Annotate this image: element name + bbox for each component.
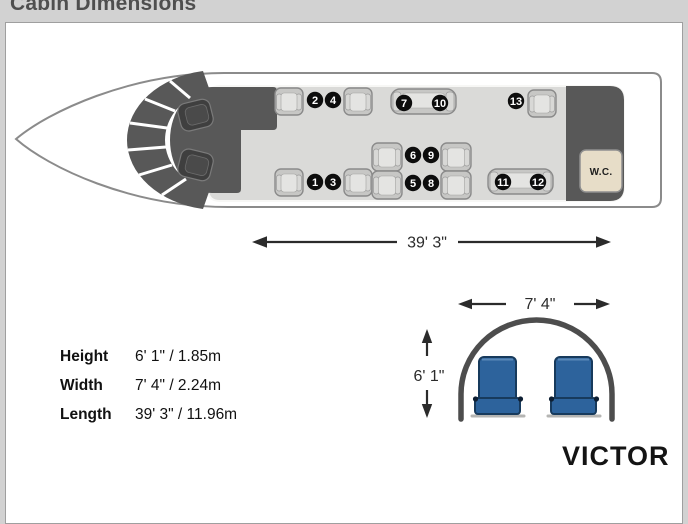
arrow-up-icon xyxy=(422,329,432,343)
dimension-value: 7' 4" / 2.24m xyxy=(135,371,221,400)
svg-text:8: 8 xyxy=(428,178,434,190)
seat-number-badge: 2 xyxy=(307,92,323,108)
dimension-label: Height xyxy=(60,342,135,371)
seat-icon xyxy=(372,143,402,171)
svg-text:9: 9 xyxy=(428,150,434,162)
seat-icon xyxy=(528,90,556,117)
length-dimension-arrow: 39' 3" xyxy=(252,235,611,252)
svg-text:10: 10 xyxy=(434,98,446,110)
height-dimension-arrow: 6' 1" xyxy=(414,329,445,418)
svg-text:2: 2 xyxy=(312,95,318,107)
length-dimension-label: 39' 3" xyxy=(407,235,447,252)
seat-number-badge: 4 xyxy=(325,92,341,108)
seat-number-badge: 6 xyxy=(405,147,421,163)
svg-text:4: 4 xyxy=(330,95,337,107)
seat-number-badge: 10 xyxy=(432,95,448,111)
svg-text:1: 1 xyxy=(312,177,318,189)
cabin-seat-icon xyxy=(549,357,599,414)
seat-icon xyxy=(441,171,471,199)
svg-text:12: 12 xyxy=(532,177,544,189)
dimensions-table: Height6' 1" / 1.85m Width7' 4" / 2.24m L… xyxy=(60,342,237,429)
seat-icon xyxy=(275,88,303,115)
seat-number-badge: 13 xyxy=(508,93,524,109)
arrow-right-icon xyxy=(596,236,611,248)
width-dimension-label: 7' 4" xyxy=(525,296,556,313)
aircraft-top-view: W.C. xyxy=(16,71,661,209)
dimension-label: Width xyxy=(60,371,135,400)
table-row: Height6' 1" / 1.85m xyxy=(60,342,237,371)
seat-number-badge: 5 xyxy=(405,175,421,191)
cabin-cross-section: 7' 4" 6' 1" xyxy=(414,296,612,419)
dimension-value: 6' 1" / 1.85m xyxy=(135,342,221,371)
seat-icon xyxy=(372,171,402,199)
seat-number-badge: 11 xyxy=(495,174,511,190)
seat-icon xyxy=(344,88,372,115)
seat-number-badge: 8 xyxy=(423,175,439,191)
table-row: Length39' 3" / 11.96m xyxy=(60,400,237,429)
seat-number-badge: 1 xyxy=(307,174,323,190)
svg-text:7: 7 xyxy=(401,98,407,110)
dimension-label: Length xyxy=(60,400,135,429)
cabin-dimensions-page: { "header": { "title": "Cabin Dimensions… xyxy=(0,0,688,458)
dimension-value: 39' 3" / 11.96m xyxy=(135,400,237,429)
svg-text:3: 3 xyxy=(330,177,336,189)
cabin-seat-icon xyxy=(473,357,523,414)
height-dimension-label: 6' 1" xyxy=(414,368,445,385)
table-row: Width7' 4" / 2.24m xyxy=(60,371,237,400)
seat-number-badge: 7 xyxy=(396,95,412,111)
seat-number-badge: 9 xyxy=(423,147,439,163)
seat-number-badge: 12 xyxy=(530,174,546,190)
lavatory-label: W.C. xyxy=(590,167,613,178)
arrow-down-icon xyxy=(422,404,432,418)
victor-logo: VICTOR xyxy=(562,441,670,472)
arrow-right-icon xyxy=(596,299,610,310)
arrow-left-icon xyxy=(252,236,267,248)
svg-text:11: 11 xyxy=(497,177,509,189)
arrow-left-icon xyxy=(458,299,472,310)
svg-text:6: 6 xyxy=(410,150,416,162)
seat-icon xyxy=(441,143,471,171)
svg-text:5: 5 xyxy=(410,178,416,190)
seat-icon xyxy=(344,169,372,196)
seat-icon xyxy=(275,169,303,196)
svg-text:13: 13 xyxy=(510,96,522,108)
width-dimension-arrow: 7' 4" xyxy=(458,296,610,313)
seat-number-badge: 3 xyxy=(325,174,341,190)
